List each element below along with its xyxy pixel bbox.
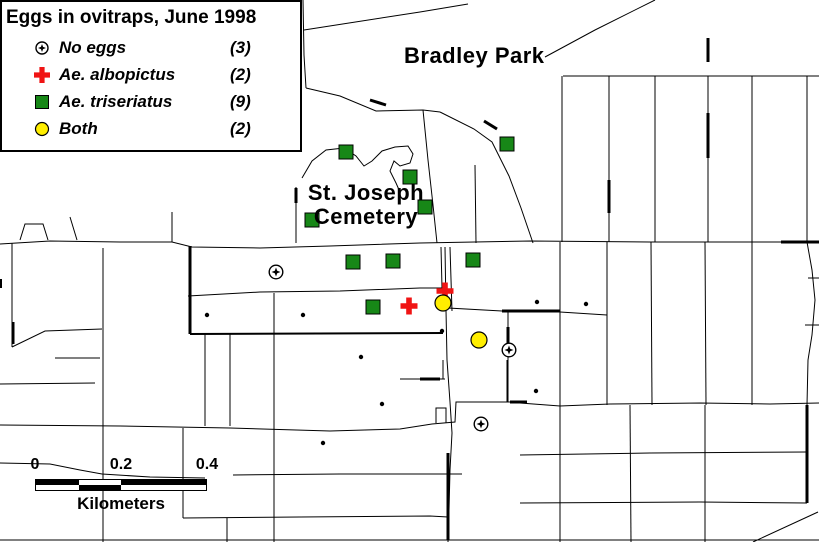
legend-item-count: (2) (230, 119, 270, 139)
legend-item-label: Ae. albopictus (59, 65, 175, 85)
no-eggs-marker (474, 417, 488, 431)
road-line (70, 217, 77, 240)
road-line (304, 4, 468, 30)
legend-item-triseriatus: Ae. triseriatus (9) (2, 88, 300, 115)
road-line (303, 0, 306, 88)
road-line (520, 403, 819, 406)
triseriatus-marker (386, 254, 400, 268)
legend-item-label: Both (59, 119, 98, 139)
legend-item-both: Both (2) (2, 115, 300, 142)
map-label-cemetery: St. Joseph Cemetery (286, 181, 446, 229)
road-line (20, 224, 48, 240)
road-line (753, 512, 818, 542)
legend-item-count: (2) (230, 65, 270, 85)
scale-bar-segment (121, 485, 206, 490)
scale-tick-0-2: 0.2 (110, 456, 132, 474)
scale-bar-strip (35, 479, 207, 491)
road-line (484, 121, 497, 129)
ovitrap-dot (321, 441, 325, 445)
legend-item-count: (3) (230, 38, 270, 58)
triseriatus-marker (366, 300, 380, 314)
legend-title: Eggs in ovitraps, June 1998 (2, 2, 300, 29)
ovitrap-dot (440, 329, 444, 333)
map-label-cemetery-line2: Cemetery (286, 205, 446, 229)
ovitrap-dot (535, 300, 539, 304)
legend-item-label: Ae. triseriatus (59, 92, 172, 112)
legend-item-albopictus: Ae. albopictus (2) (2, 61, 300, 88)
scale-bar-unit: Kilometers (35, 494, 207, 514)
scale-bar-row-bottom (36, 485, 206, 490)
road-line (188, 288, 443, 296)
road-line (0, 241, 819, 248)
ovitrap-dot (534, 389, 538, 393)
triseriatus-marker (466, 253, 480, 267)
legend-item-no-eggs: No eggs (3) (2, 34, 300, 61)
scale-bar: 0 0.2 0.4 Kilometers (0, 450, 270, 525)
no-eggs-icon (32, 38, 52, 58)
ovitrap-dot (205, 313, 209, 317)
legend-item-label: No eggs (59, 38, 126, 58)
road-line (12, 329, 102, 347)
legend-rows: No eggs (3) Ae. albopictus (2) Ae. trise… (2, 34, 300, 142)
scale-tick-0: 0 (31, 456, 40, 474)
no-eggs-marker (502, 343, 516, 357)
road-line (651, 242, 652, 405)
road-line (475, 165, 476, 243)
legend-item-count: (9) (230, 92, 270, 112)
ovitrap-dot (359, 355, 363, 359)
no-eggs-marker (269, 265, 283, 279)
scale-tick-0-4: 0.4 (196, 456, 218, 474)
albopictus-marker (401, 298, 418, 315)
road-line (190, 333, 443, 334)
ovitrap-dot (584, 302, 588, 306)
red-cross-icon (32, 65, 52, 85)
map-view: Eggs in ovitraps, June 1998 No eggs (3) … (0, 0, 819, 542)
triseriatus-marker (346, 255, 360, 269)
green-square-icon (32, 92, 52, 112)
triseriatus-marker (339, 145, 353, 159)
road-line (0, 383, 95, 384)
map-label-cemetery-line1: St. Joseph (286, 181, 446, 205)
yellow-circle-icon (32, 119, 52, 139)
road-line (520, 452, 807, 455)
road-line (0, 402, 510, 431)
legend-panel: Eggs in ovitraps, June 1998 No eggs (3) … (0, 0, 302, 152)
road-line (520, 502, 807, 503)
scale-bar-segment (36, 485, 79, 490)
ovitrap-dot (380, 402, 384, 406)
road-line (436, 408, 446, 423)
road-line (705, 242, 706, 405)
both-marker (435, 295, 451, 311)
road-line (441, 247, 442, 288)
road-line (370, 100, 386, 105)
both-marker (471, 332, 487, 348)
road-line (440, 112, 533, 243)
scale-bar-segment (79, 485, 122, 490)
triseriatus-marker (500, 137, 514, 151)
road-line (545, 0, 655, 57)
road-line (807, 242, 815, 405)
map-label-bradley-park: Bradley Park (404, 43, 545, 69)
road-line (630, 405, 631, 542)
ovitrap-dot (301, 313, 305, 317)
